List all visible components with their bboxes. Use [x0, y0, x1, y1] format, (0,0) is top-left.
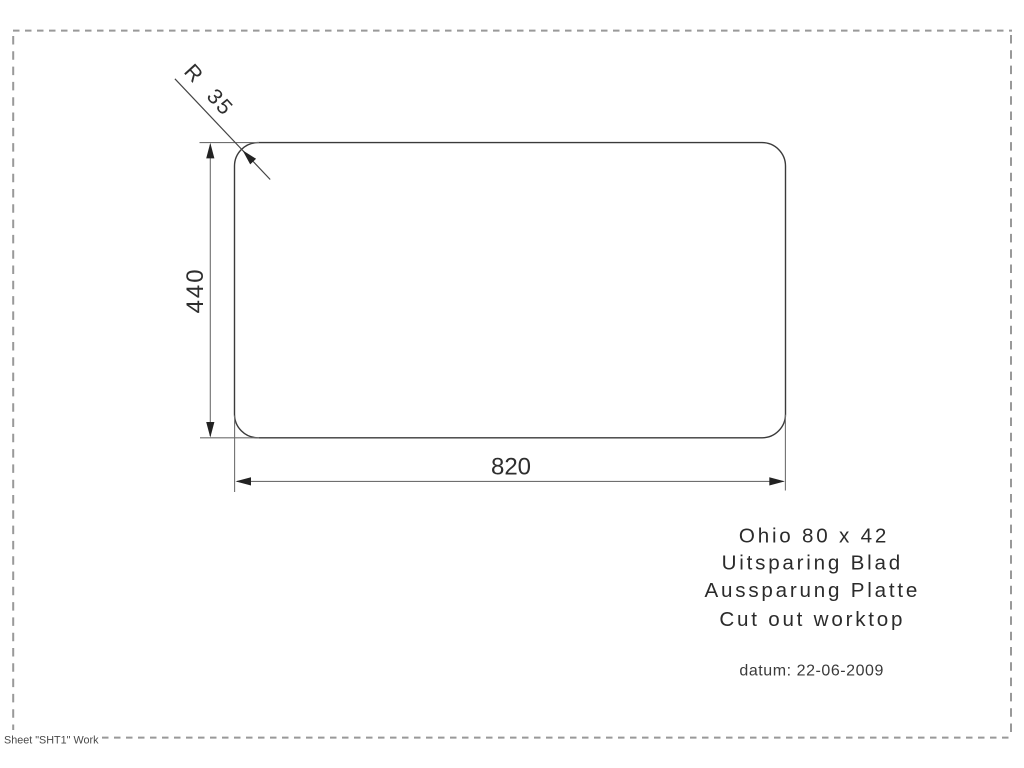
svg-text:Aussparung Platte: Aussparung Platte [705, 579, 921, 602]
svg-text:440: 440 [182, 267, 209, 313]
svg-text:Uitsparing Blad: Uitsparing Blad [722, 551, 903, 574]
svg-text:Sheet "SHT1" Work: Sheet "SHT1" Work [4, 735, 99, 747]
svg-text:Ohio 80 x 42: Ohio 80 x 42 [739, 525, 889, 548]
svg-text:820: 820 [491, 453, 531, 480]
svg-text:Cut out worktop: Cut out worktop [719, 608, 905, 631]
svg-text:datum: 22-06-2009: datum: 22-06-2009 [739, 663, 884, 680]
